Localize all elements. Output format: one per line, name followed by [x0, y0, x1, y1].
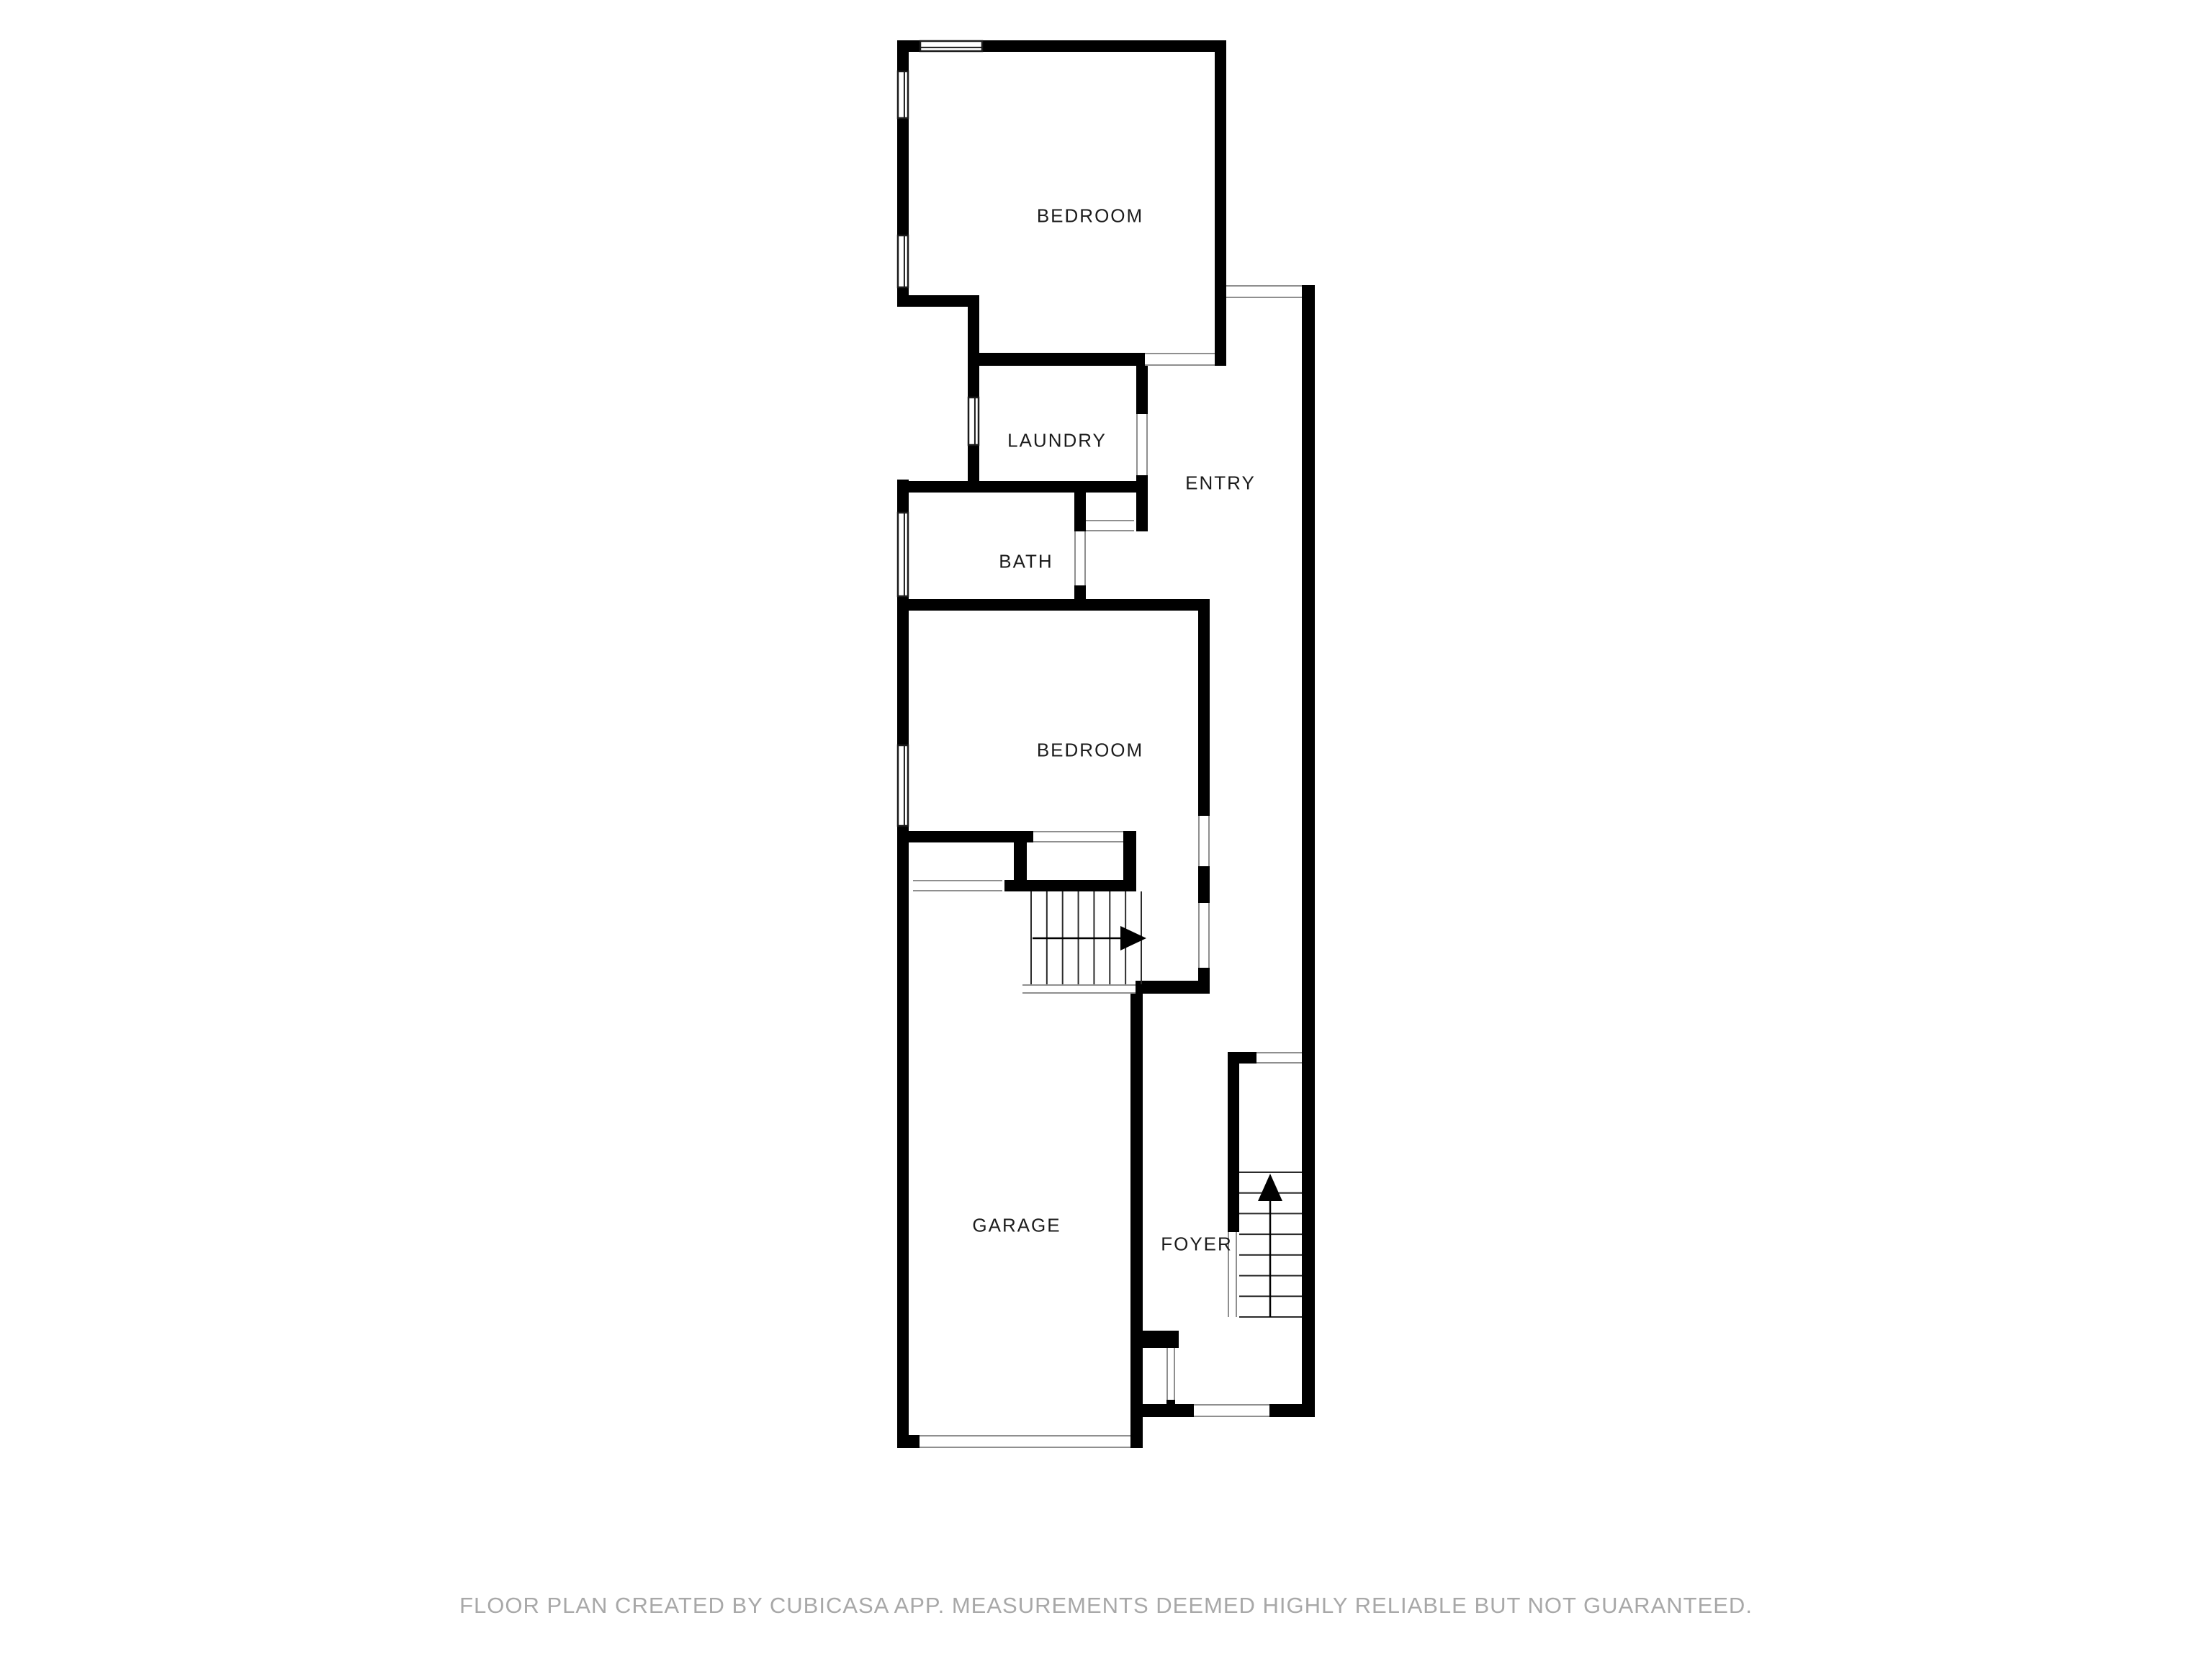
wall-segment: [1143, 1404, 1194, 1417]
door-opening: [1033, 831, 1123, 842]
wall-segment: [1004, 880, 1136, 891]
wall-segment: [897, 481, 1148, 493]
window: [898, 745, 908, 826]
door-opening: [1136, 414, 1148, 475]
window: [968, 397, 979, 445]
wall-segment: [1074, 493, 1086, 531]
wall-segment: [897, 831, 1033, 842]
wall-segment: [1136, 981, 1210, 994]
window: [898, 71, 908, 118]
room-label-bath: BATH: [999, 551, 1053, 573]
window: [920, 41, 982, 51]
wall-segment: [1228, 1052, 1256, 1064]
wall-segment: [1198, 599, 1210, 816]
footer-disclaimer-text: FLOOR PLAN CREATED BY CUBICASA APP. MEAS…: [0, 1593, 2212, 1619]
wall-segment: [968, 295, 979, 493]
wall-segment: [1166, 1400, 1175, 1406]
door-opening: [920, 1435, 1130, 1448]
wall-segment: [897, 480, 909, 1448]
wall-segment: [897, 295, 979, 307]
door-opening: [1145, 353, 1215, 366]
door-opening: [1226, 285, 1302, 298]
room-label-laundry: LAUNDRY: [1007, 430, 1107, 452]
room-label-foyer: FOYER: [1161, 1233, 1233, 1256]
wall-segment: [897, 1435, 920, 1448]
floor-plan-page: BEDROOMLAUNDRYENTRYBATHBEDROOMGARAGEFOYE…: [0, 0, 2212, 1659]
door-opening: [1198, 903, 1210, 968]
door-opening: [1194, 1404, 1269, 1417]
wall-segment: [1130, 988, 1143, 1448]
foyer-stairs-arrow-head: [1258, 1174, 1282, 1201]
upper-stairs-arrow-head: [1120, 926, 1146, 950]
floor-plan-drawing: [0, 0, 2212, 1659]
wall-segment: [968, 353, 1145, 366]
room-label-entry: ENTRY: [1185, 472, 1256, 495]
door-opening: [1086, 520, 1134, 531]
room-label-garage: GARAGE: [972, 1215, 1061, 1237]
window: [898, 235, 908, 287]
door-opening: [913, 880, 1002, 891]
door-opening: [1074, 531, 1086, 585]
room-label-bedroom-middle: BEDROOM: [1037, 739, 1143, 762]
window: [898, 513, 908, 596]
wall-segment: [1302, 285, 1315, 1417]
wall-segment: [1136, 366, 1148, 414]
wall-segment: [1198, 866, 1210, 903]
door-opening: [1198, 816, 1210, 866]
door-opening: [1256, 1052, 1302, 1064]
wall-segment: [1130, 1331, 1179, 1348]
room-label-bedroom-top: BEDROOM: [1037, 205, 1143, 228]
wall-segment: [897, 599, 1210, 611]
wall-segment: [1215, 40, 1226, 366]
wall-segment: [1228, 1064, 1239, 1232]
